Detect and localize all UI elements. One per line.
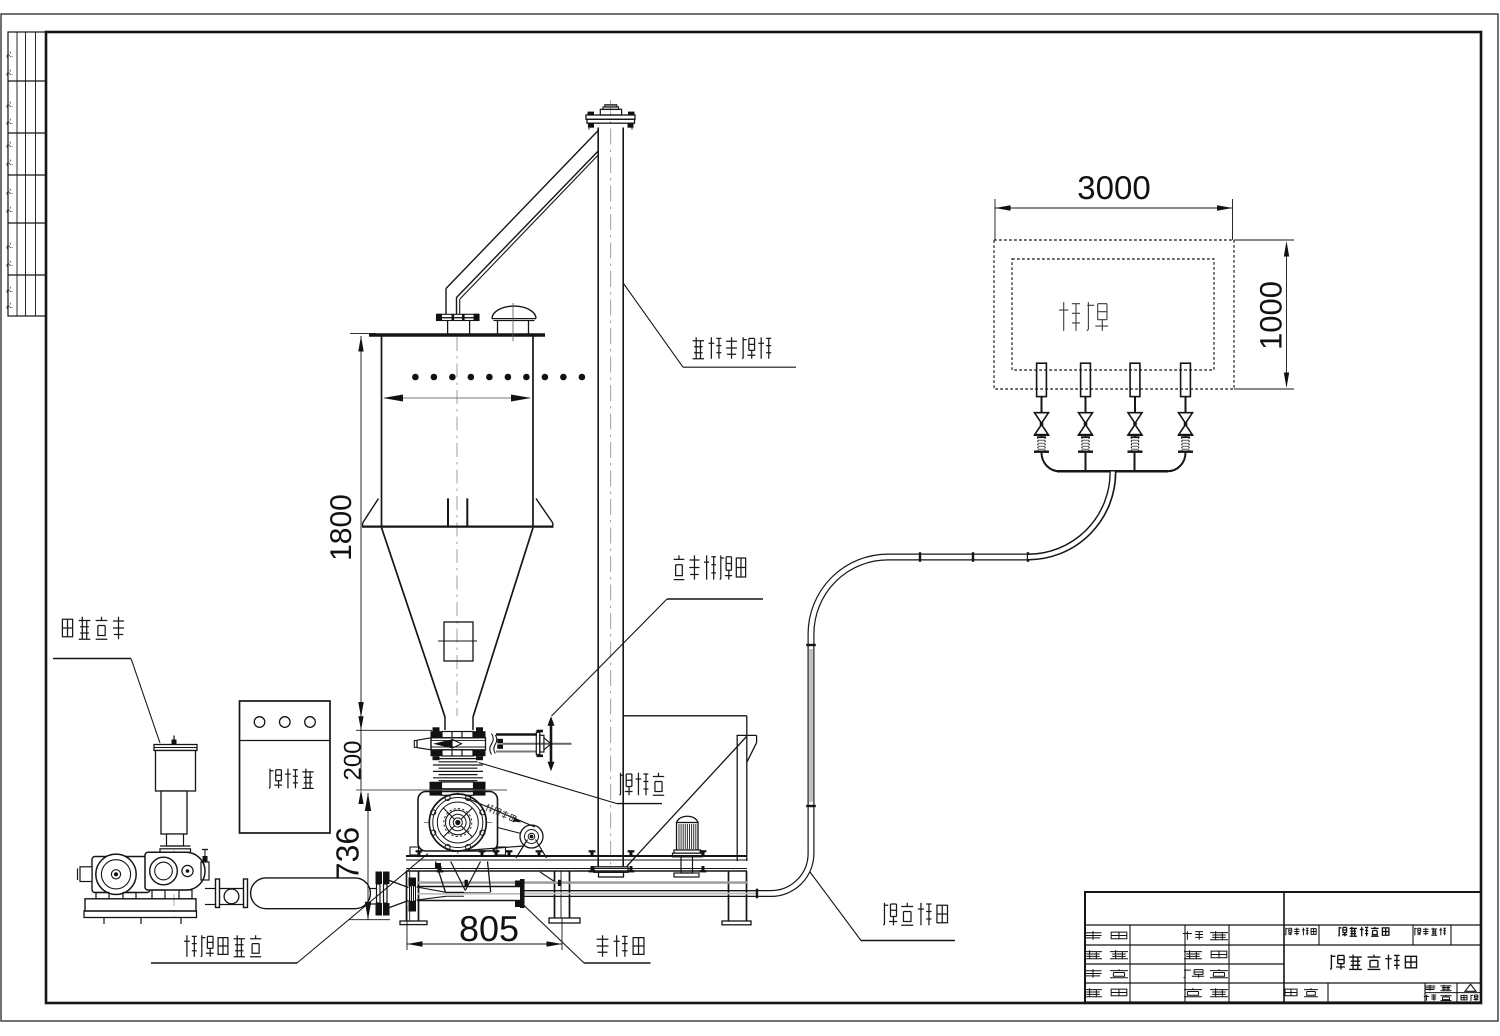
- svg-text:?-: ?-: [5, 302, 15, 310]
- svg-text:736: 736: [330, 827, 366, 880]
- svg-text:200: 200: [340, 740, 367, 780]
- svg-text:?-: ?-: [5, 286, 15, 294]
- svg-text:?-: ?-: [5, 118, 15, 126]
- svg-text:1800: 1800: [325, 494, 358, 561]
- svg-text:?-: ?-: [5, 242, 15, 250]
- svg-text:805: 805: [459, 908, 519, 949]
- svg-text:?-: ?-: [5, 206, 15, 214]
- svg-text:?-: ?-: [5, 101, 15, 109]
- svg-text:?-: ?-: [5, 159, 15, 167]
- svg-text:?-: ?-: [5, 141, 15, 149]
- svg-text:?-: ?-: [5, 51, 15, 59]
- svg-text:1000: 1000: [1254, 281, 1289, 350]
- svg-text:?-: ?-: [5, 188, 15, 196]
- svg-text:3000: 3000: [1077, 169, 1150, 206]
- svg-text:?-: ?-: [5, 260, 15, 268]
- svg-text:?-: ?-: [5, 69, 15, 77]
